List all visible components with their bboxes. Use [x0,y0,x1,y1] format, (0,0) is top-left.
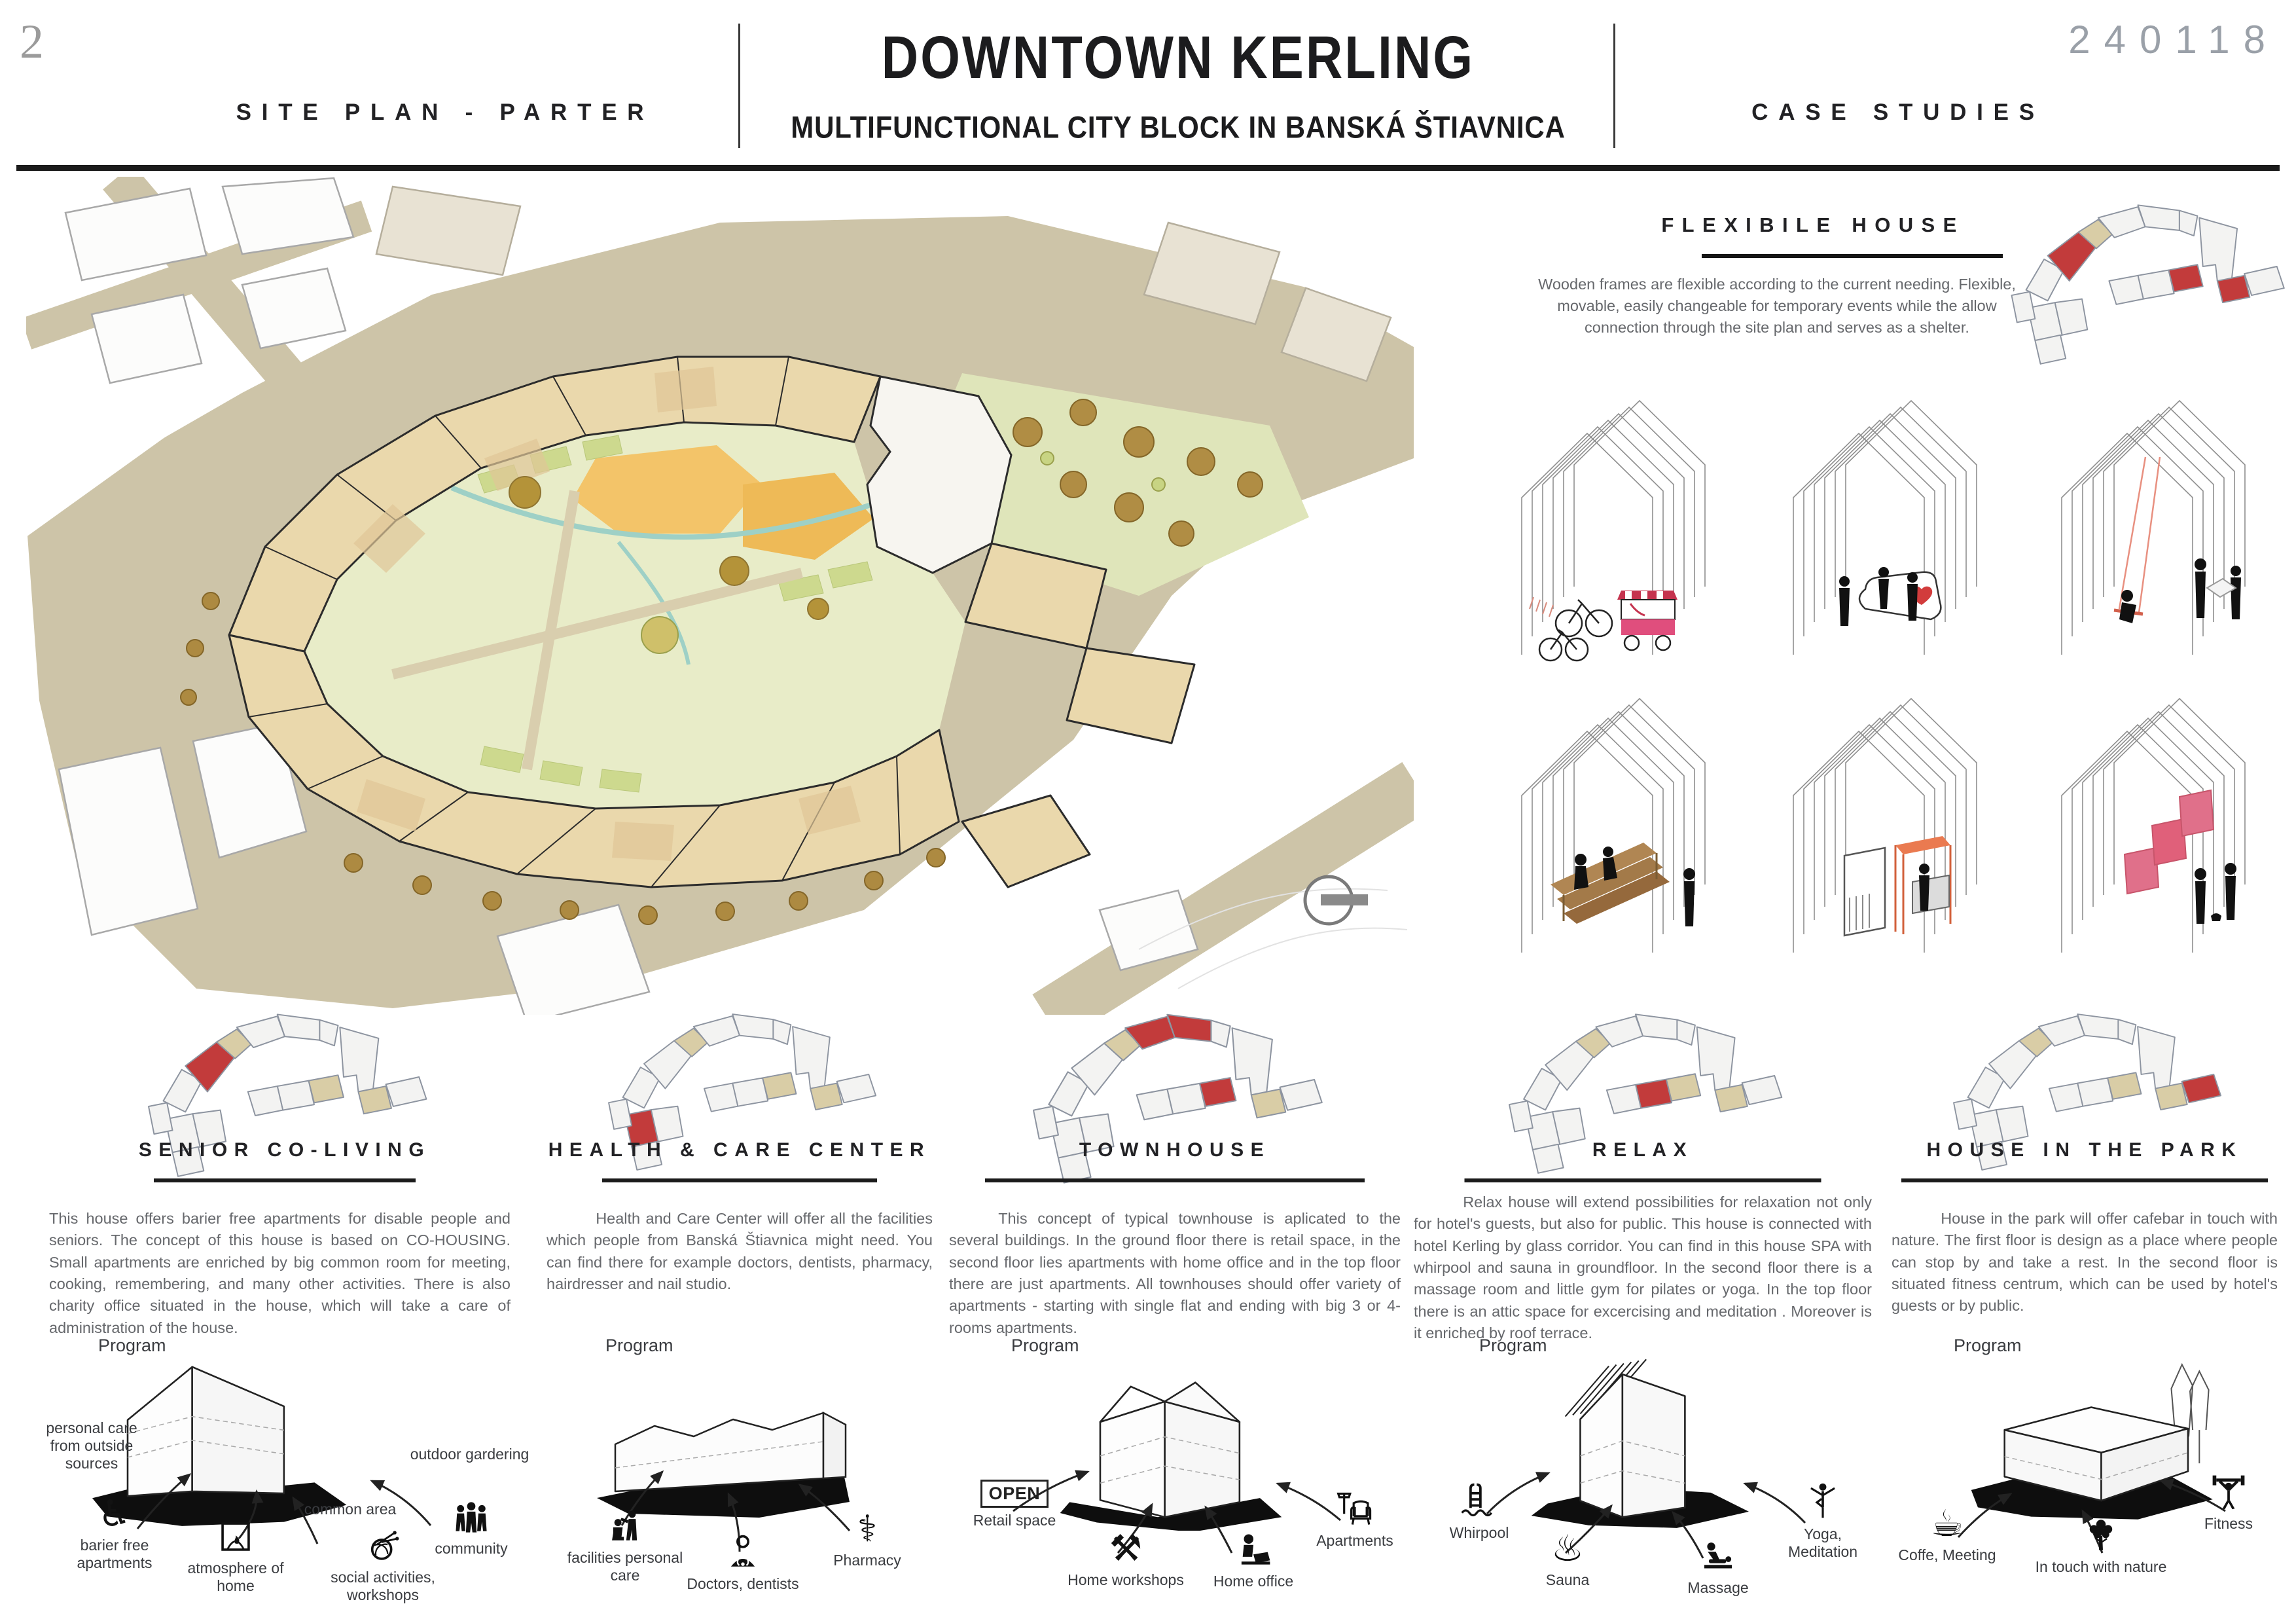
section-title-case-studies: CASE STUDIES [1649,100,2147,126]
study-rule [1465,1178,1821,1182]
tools-icon: ⚒ [1064,1531,1188,1567]
flexible-house-title: FLEXIBILE HOUSE [1584,213,2042,237]
fireplace-icon [217,1518,255,1556]
program-label: Program [605,1336,673,1356]
presentation-board: 2 240118 SITE PLAN - PARTER DOWNTOWN KER… [0,0,2296,1623]
mini-diagram-flexible-house [2000,200,2291,367]
coffee-icon: ☕ [1898,1506,1996,1542]
program-item: In touch with nature [2029,1514,2173,1576]
program-item: OPEN Retail space [959,1480,1070,1529]
header-rule [16,165,2280,171]
header-divider-right [1613,24,1615,148]
case-study-townhouse: TOWNHOUSE This concept of typical townho… [949,1005,1401,1623]
study-rule [154,1178,416,1182]
open-sign-icon: OPEN [980,1480,1049,1508]
sketch-exhibition [2032,691,2296,979]
program-item: ⚕ Pharmacy [818,1511,916,1569]
study-rule [602,1178,877,1182]
program-item: community [422,1498,520,1558]
case-study-health-care-center: HEALTH & CARE CENTER Health and Care Cen… [543,1005,936,1623]
sketch-swing [2032,393,2296,681]
study-text: This house offers barier free apartments… [49,1208,511,1339]
swing-icon [2114,457,2160,623]
program-label: Program [1479,1336,1547,1356]
page-subtitle: MULTIFUNCTIONAL CITY BLOCK IN BANSKÁ ŠTI… [759,110,1597,145]
sketch-bike-foodcart [1492,393,1761,681]
program-diagram: Whirpool ♨ Sauna Massage [1414,1362,1872,1623]
study-rule [985,1178,1365,1182]
info-counter-icon [1859,572,1941,619]
program-item: Doctors, dentists [684,1533,802,1593]
yarn-icon [364,1527,402,1565]
sauna-icon: ♨ [1518,1531,1617,1567]
sketch-cafe-pavilion [1764,691,2032,979]
study-title: HOUSE IN THE PARK [1885,1139,2284,1161]
program-item: Whirpool [1427,1481,1532,1542]
food-cart-icon [1617,591,1677,650]
study-title: HEALTH & CARE CENTER [543,1139,936,1161]
wheelchair-icon: ♿ [59,1496,170,1533]
fitness-icon [2209,1472,2248,1511]
caduceus-icon: ⚕ [818,1511,916,1548]
bikes-icon [1539,600,1612,661]
program-item: Fitness [2183,1472,2274,1533]
program-item: ♿ barier free apartments [59,1496,170,1572]
program-item: ☕ Coffe, Meeting [1898,1506,1996,1564]
site-plan [26,177,1414,1015]
program-item: outdoor gardering [409,1446,530,1463]
program-item: atmosphere of home [183,1518,288,1595]
pool-ladder-icon [1459,1481,1499,1520]
page-number: 2 [20,14,44,70]
sketch-wooden-tribune [1492,691,1761,979]
study-title: RELAX [1414,1139,1872,1161]
study-rule [1901,1178,2268,1182]
study-title: TOWNHOUSE [949,1139,1401,1161]
program-item: personal care from outside sources [39,1419,144,1472]
armchair-icon [1335,1490,1375,1528]
project-code: 240118 [2068,17,2279,62]
page-title: DOWNTOWN KERLING [759,22,1597,92]
program-label: Program [1011,1336,1079,1356]
program-item: ♨ Sauna [1518,1531,1617,1589]
community-icon [451,1498,492,1536]
massage-icon [1697,1539,1739,1575]
program-diagram: ☕ Coffe, Meeting In touch with nature [1885,1362,2284,1623]
program-item: Home office [1201,1531,1306,1590]
flexible-house-text: Wooden frames are flexible according to … [1538,274,2016,338]
program-item: Apartments [1306,1490,1404,1550]
case-study-house-in-the-park: HOUSE IN THE PARK House in the park will… [1885,1005,2284,1623]
program-label: Program [1954,1336,2022,1356]
study-text: Relax house will extend possibilities fo… [1414,1192,1872,1345]
program-diagram: facilities personal care Doctors, dentis… [543,1362,936,1623]
hairdresser-icon [605,1507,645,1545]
program-item: Massage [1669,1539,1767,1597]
study-title: SENIOR CO-LIVING [39,1139,530,1161]
yoga-icon [1804,1481,1842,1522]
flexible-house-rule [1702,254,2003,258]
program-item: facilities personal care [566,1507,684,1584]
study-text: Health and Care Center will offer all th… [547,1208,933,1295]
program-diagram: personal care from outside sources ♿ bar… [39,1362,530,1623]
case-study-relax: RELAX Relax house will extend possibilit… [1414,1005,1872,1623]
program-item: common area [298,1501,403,1518]
study-text: This concept of typical townhouse is apl… [949,1208,1401,1339]
case-study-senior-co-living: SENIOR CO-LIVING This house offers barie… [39,1005,530,1623]
tree-icon [2082,1514,2120,1554]
section-title-site-plan: SITE PLAN - PARTER [216,100,674,126]
program-item: ⚒ Home workshops [1064,1531,1188,1589]
study-text: House in the park will offer cafebar in … [1892,1208,2278,1317]
sketch-info-point [1764,393,2032,681]
home-office-icon [1233,1531,1274,1569]
program-diagram: OPEN Retail space ⚒ Home workshops Home … [949,1362,1401,1623]
people-silhouettes [2195,863,2236,924]
program-item: Yoga, Meditation [1770,1481,1875,1561]
header-divider-left [738,24,740,148]
doctor-icon [724,1533,762,1571]
